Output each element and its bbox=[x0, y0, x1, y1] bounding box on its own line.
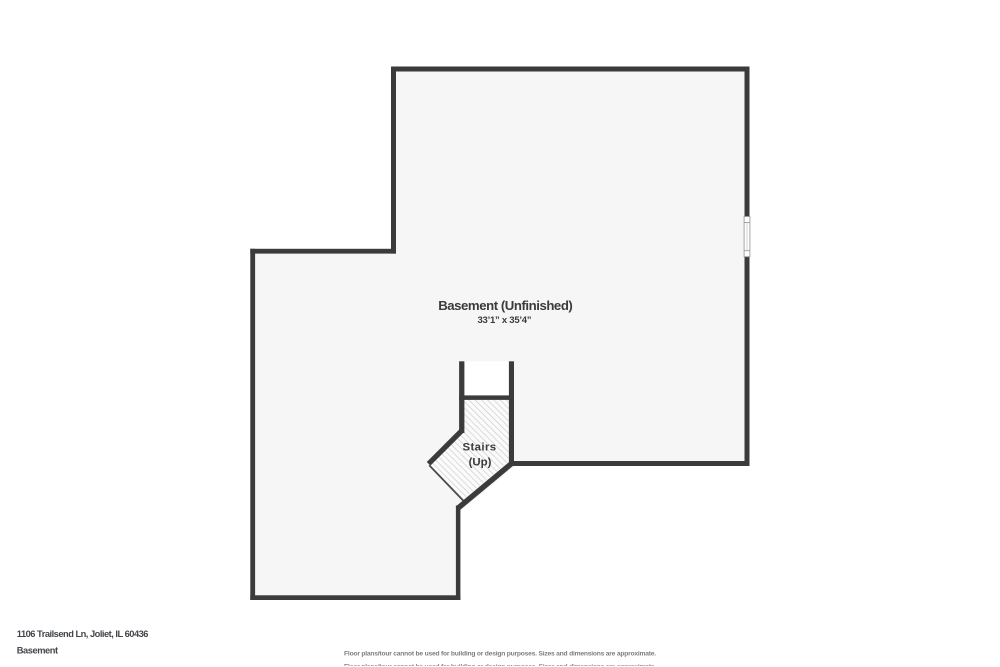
svg-text:Basement (Unfinished): Basement (Unfinished) bbox=[438, 298, 572, 313]
svg-text:Floor plans/tour cannot be use: Floor plans/tour cannot be used for buil… bbox=[344, 651, 656, 658]
svg-text:(Up): (Up) bbox=[469, 456, 492, 468]
svg-text:Stairs: Stairs bbox=[462, 442, 496, 454]
svg-text:Basement: Basement bbox=[17, 646, 58, 656]
svg-text:1106 Trailsend Ln, Joliet, IL: 1106 Trailsend Ln, Joliet, IL 60436 bbox=[17, 629, 148, 639]
svg-text:33’1” x 35’4”: 33’1” x 35’4” bbox=[478, 315, 532, 326]
